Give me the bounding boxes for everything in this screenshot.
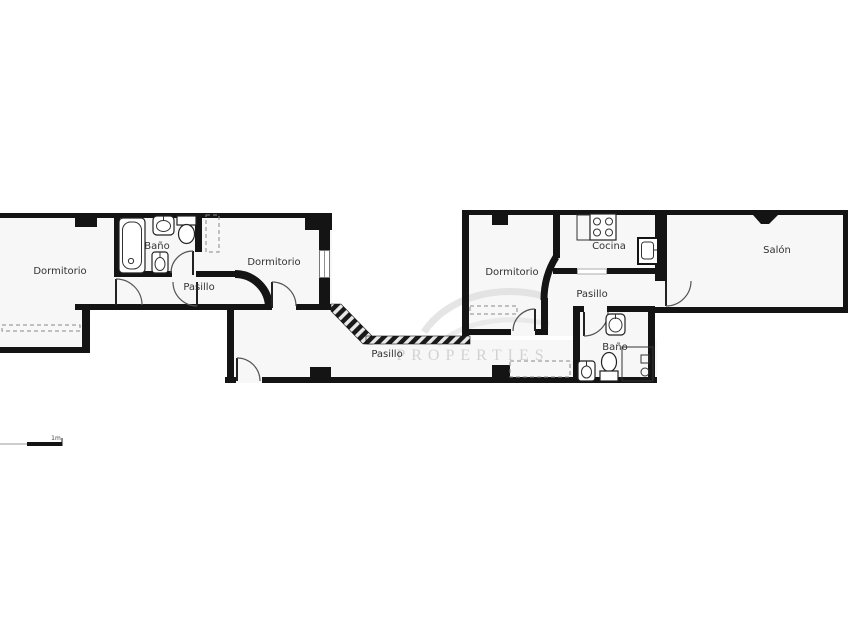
label-dormitorio-3: Dormitorio: [485, 267, 538, 278]
label-bano-1: Baño: [144, 241, 169, 252]
label-bano-2: Baño: [602, 342, 627, 353]
floorplan-drawing: PROPERTIES: [0, 0, 850, 620]
label-pasillo-3: Pasillo: [576, 289, 607, 300]
floorplan-canvas: PROPERTIES: [0, 0, 850, 620]
washbasin-2: [606, 314, 625, 335]
label-dormitorio-2: Dormitorio: [247, 257, 300, 268]
scale-bar: 1m: [0, 435, 62, 446]
window: [578, 269, 607, 274]
toilet-1: [177, 216, 196, 244]
pillar: [75, 218, 97, 227]
pillar: [492, 215, 508, 225]
label-salon: Salón: [763, 244, 791, 256]
label-cocina: Cocina: [592, 241, 626, 252]
washbasin-1: [153, 216, 174, 235]
kitchen-sink: [638, 238, 658, 264]
bidet-1: [152, 252, 168, 273]
pillar: [492, 365, 510, 383]
bidet-2: [578, 361, 595, 381]
bathtub: [119, 218, 145, 273]
toilet-2: [600, 353, 618, 382]
pillar: [310, 367, 331, 383]
label-dormitorio-1: Dormitorio: [33, 266, 86, 277]
label-pasillo-2: Pasillo: [371, 349, 402, 360]
label-pasillo-1: Pasillo: [183, 282, 214, 293]
scale-label: 1m: [51, 435, 61, 442]
